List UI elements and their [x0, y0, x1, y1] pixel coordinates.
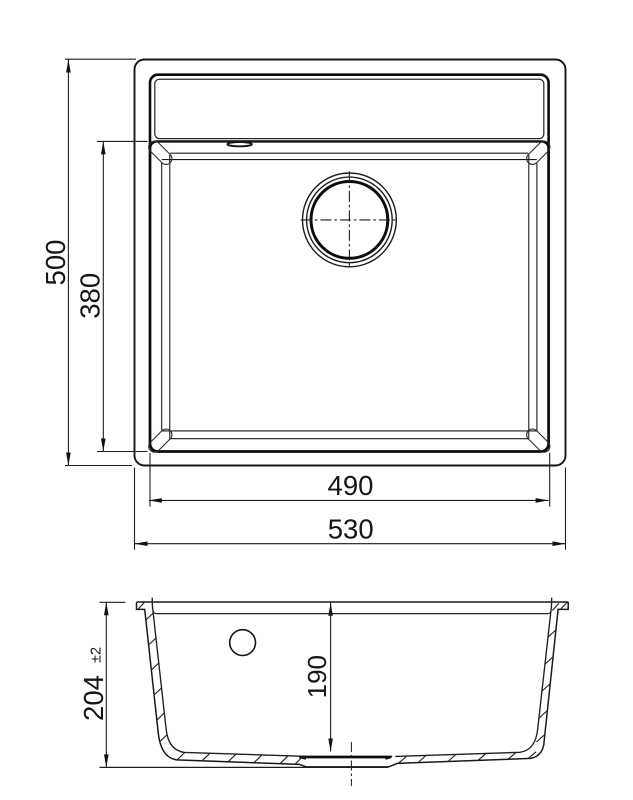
svg-text:±2: ±2 — [89, 647, 105, 663]
svg-text:190: 190 — [302, 655, 332, 698]
svg-text:530: 530 — [328, 513, 374, 544]
svg-text:380: 380 — [74, 273, 105, 319]
svg-text:490: 490 — [328, 470, 374, 501]
svg-text:500: 500 — [40, 240, 71, 286]
svg-text:204: 204 — [78, 675, 109, 721]
